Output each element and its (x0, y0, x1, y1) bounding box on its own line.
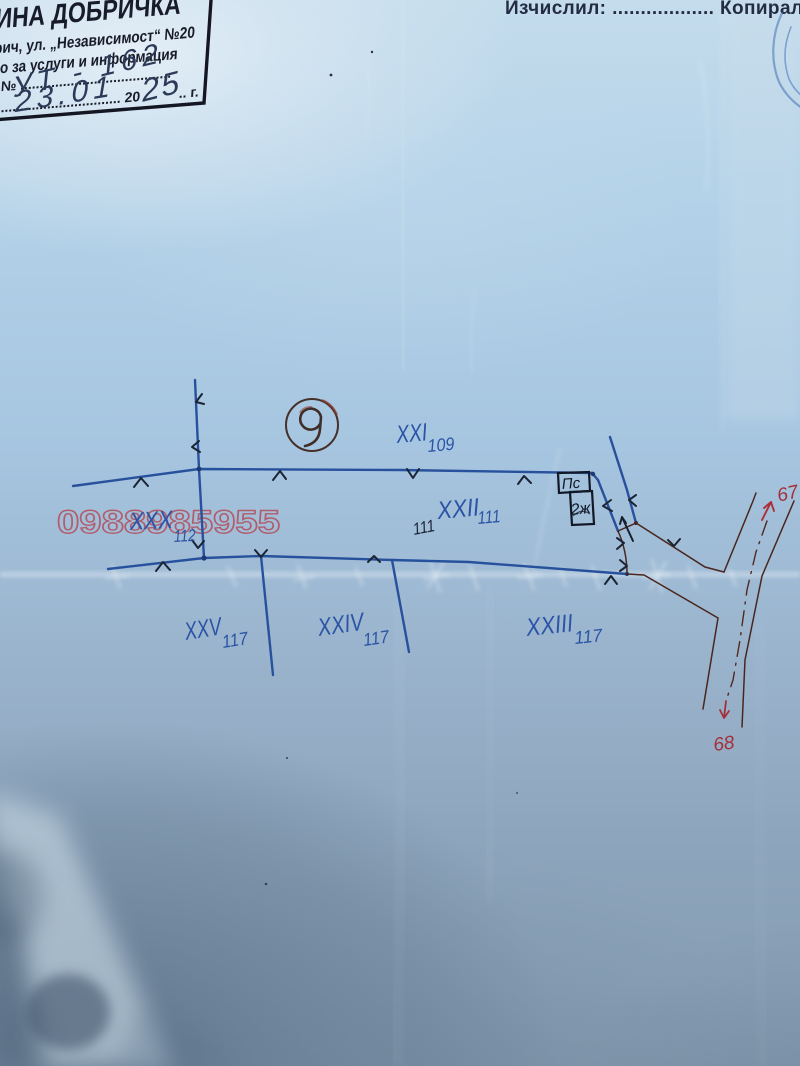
svg-text:XXX: XXX (128, 506, 174, 536)
svg-text:Изчислил: .................. К: Изчислил: .................. Копирал (505, 0, 800, 19)
svg-text:117: 117 (220, 628, 250, 652)
svg-text:117: 117 (362, 626, 391, 650)
svg-text:Пс: Пс (561, 475, 581, 493)
svg-text:2ж: 2ж (569, 500, 593, 519)
svg-text:XXI: XXI (394, 418, 428, 449)
svg-text:68: 68 (712, 732, 736, 756)
svg-text:67: 67 (775, 481, 800, 506)
svg-text:112: 112 (173, 526, 196, 546)
svg-text:117: 117 (573, 625, 604, 648)
svg-text:109: 109 (427, 434, 456, 456)
svg-text:XXII: XXII (435, 493, 480, 525)
svg-text:XXIII: XXIII (524, 609, 575, 642)
svg-text:111: 111 (477, 506, 502, 528)
